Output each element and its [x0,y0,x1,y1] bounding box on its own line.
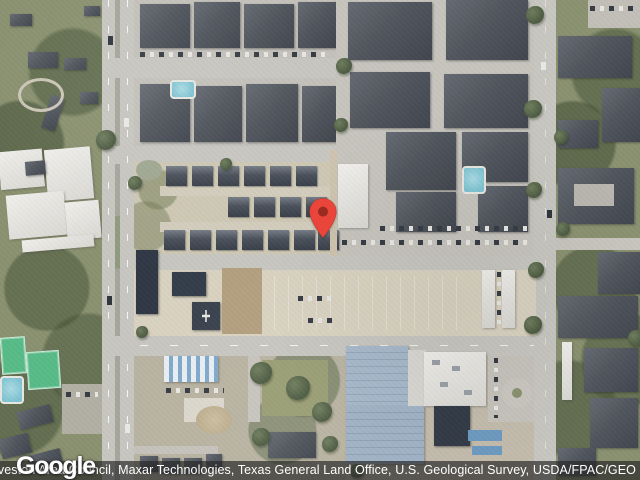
car [108,36,113,45]
apartment-roof [602,88,640,142]
cul-de-sac-island [512,388,522,398]
swimming-pool-west [0,376,24,404]
dirt-patch [222,268,262,334]
parked-cars [298,296,332,301]
car [124,118,129,127]
house-roof [64,58,86,70]
townhome-roof [298,2,336,48]
warehouse-navy-roof [172,272,206,296]
parked-cars [380,226,530,231]
carport-structure [502,270,515,328]
parked-cars [140,52,330,57]
townhome-roof [194,86,242,142]
driveway-row [160,186,336,196]
tree [628,330,640,346]
parked-cars [590,6,638,11]
attribution-text: bus, Houston-Galveston Area Council, Max… [0,461,640,480]
small-house [242,230,263,250]
car [541,62,546,70]
navy-roof-section [434,406,470,446]
small-house [244,166,265,186]
lane-marking [108,0,109,480]
office-building-white [338,164,368,228]
small-house [254,197,275,217]
small-house [164,230,185,250]
parking-stripes [260,276,460,330]
small-house [280,197,301,217]
tennis-court [26,350,62,390]
dark-roof [25,160,46,176]
warehouse-navy-roof [136,250,158,314]
townhome-roof [140,4,190,48]
road-median [115,0,120,58]
blue-roof-building [346,346,408,406]
small-house [190,230,211,250]
car [107,296,112,305]
blue-roof-building [346,406,424,464]
lane-marking [545,0,546,480]
blue-striped-building [164,356,218,382]
dirt-circle [196,406,232,434]
community-pool [170,80,196,99]
parked-cars [66,392,98,397]
parking-strip [556,238,640,250]
cross-street-mid [134,146,336,162]
apartment-roof [350,72,430,128]
house-roof [10,14,32,26]
courtyard [574,184,614,206]
car [125,424,130,433]
rooftop-unit [440,382,448,387]
blue-carport [472,446,502,455]
apartment-roof [444,74,528,128]
rooftop-unit [452,366,460,371]
apartment-roof [584,348,638,392]
parked-cars [494,358,498,418]
warehouse-roof [6,191,68,240]
map-pin-icon [309,198,337,238]
parked-cars [166,388,224,393]
apartment-roof [598,252,640,294]
small-house [166,166,187,186]
parking-lot-northeast-corner [588,0,640,28]
residential-street [134,446,218,454]
house-roof [84,6,100,16]
small-house [216,230,237,250]
house-roof [28,52,58,68]
attribution-bar: bus, Houston-Galveston Area Council, Max… [0,461,640,480]
circular-driveway [18,78,64,112]
rooftop-unit [464,390,472,395]
lane-marking [127,0,128,480]
apartment-roof [348,2,432,60]
tennis-court [0,336,27,375]
apartment-roof [386,132,456,190]
parked-cars [497,272,501,326]
apartment-roof [558,36,632,78]
car [547,210,552,218]
house-roof [80,92,98,104]
carport-structure [482,270,495,328]
location-marker-pin[interactable] [309,198,337,238]
road-median [115,78,120,146]
apartment-roof [590,398,638,448]
apartment-pool [462,166,486,194]
parked-cars [342,240,530,245]
map-canvas[interactable]: bus, Houston-Galveston Area Council, Max… [0,0,640,480]
google-logo[interactable]: Google [16,452,95,480]
small-house [270,166,291,186]
townhome-roof [246,84,298,142]
small-house [228,197,249,217]
townhome-roof [194,2,240,48]
townhome-roof [244,4,294,48]
rooftop-unit [432,360,440,365]
carport-structure [562,342,572,400]
townhome-roof [302,86,336,142]
small-house [296,166,317,186]
cross-street-upper [134,58,336,78]
small-house [192,166,213,186]
parked-cars [308,318,334,323]
apartment-roof [268,432,316,458]
blue-carport [468,430,502,441]
road-median [115,164,120,338]
apartment-roof [446,0,528,60]
apartment-roof [558,296,638,338]
small-house [268,230,289,250]
industrial-buildings-west [0,142,104,254]
